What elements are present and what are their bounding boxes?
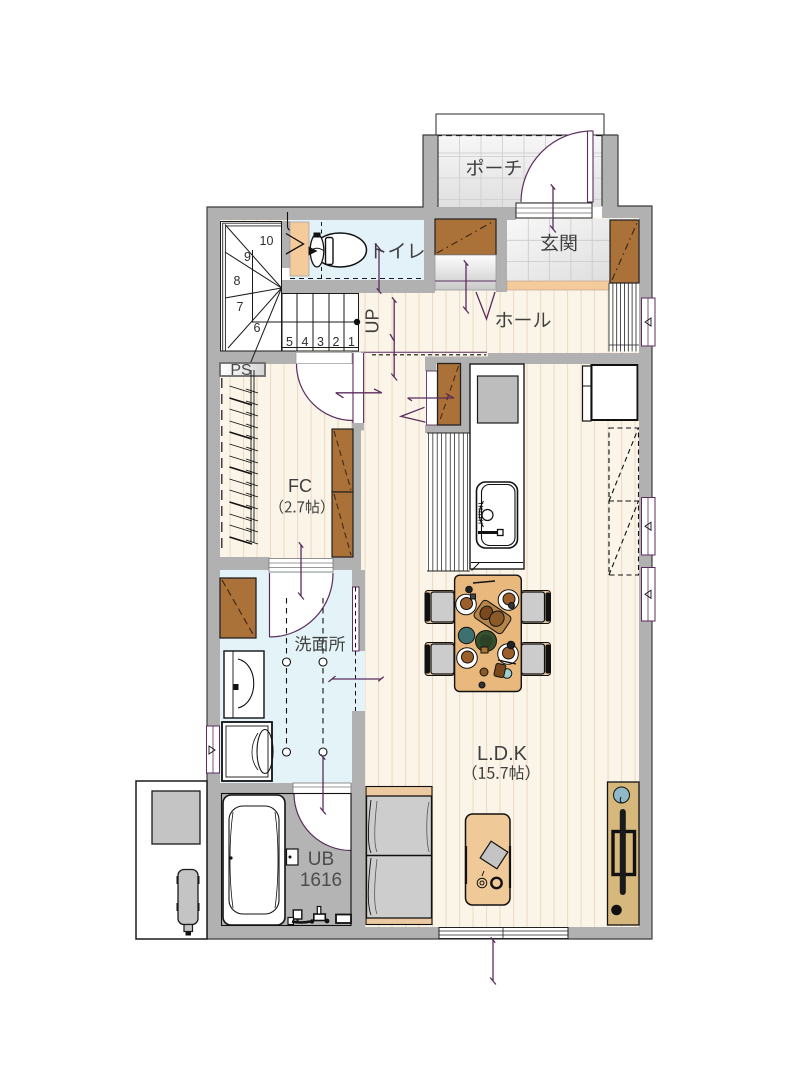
svg-text:L.D.K: L.D.K [477,743,528,765]
svg-text:2: 2 [333,335,340,349]
svg-text:1616: 1616 [300,870,342,891]
svg-text:8: 8 [234,274,241,288]
svg-text:4: 4 [302,335,309,349]
svg-text:UB: UB [308,849,334,870]
svg-text:9: 9 [244,250,251,264]
svg-text:PS: PS [230,362,251,379]
svg-text:3: 3 [317,335,324,349]
svg-text:10: 10 [260,234,274,248]
svg-text:UP: UP [363,308,383,333]
svg-text:FC: FC [288,476,312,496]
svg-text:6: 6 [254,321,261,335]
svg-text:5: 5 [286,335,293,349]
svg-text:7: 7 [237,300,244,314]
svg-text:1: 1 [348,335,355,349]
